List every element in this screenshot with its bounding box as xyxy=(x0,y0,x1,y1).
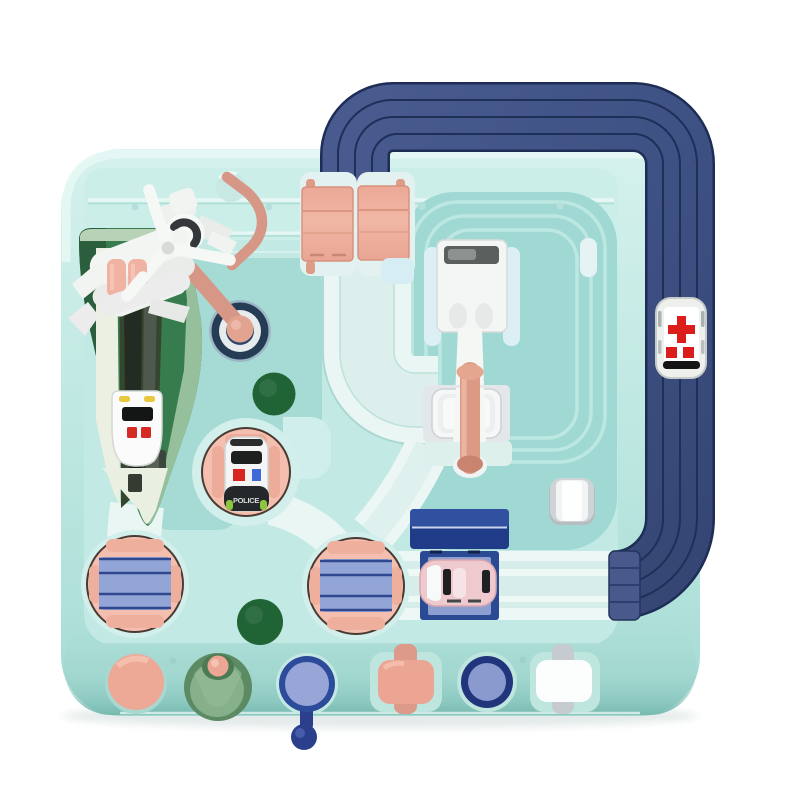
svg-text:POLICE: POLICE xyxy=(233,496,259,505)
